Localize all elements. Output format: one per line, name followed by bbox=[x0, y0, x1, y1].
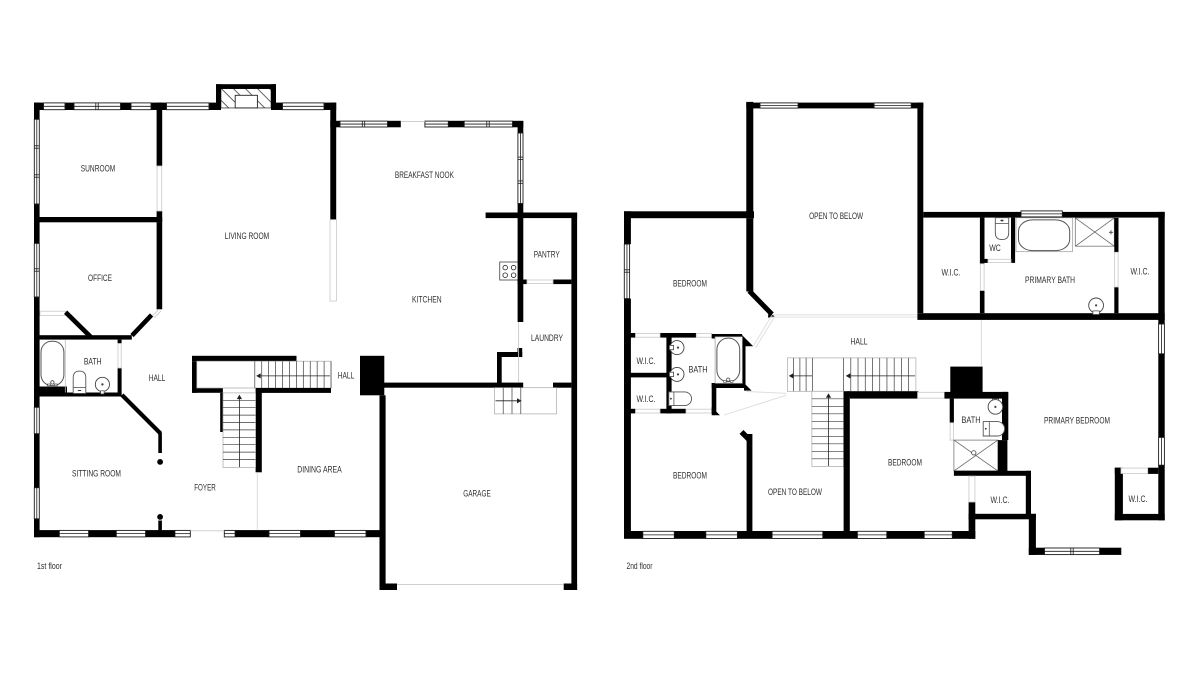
svg-text:PRIMARY BATH: PRIMARY BATH bbox=[1025, 275, 1075, 285]
svg-text:LAUNDRY: LAUNDRY bbox=[531, 333, 563, 343]
svg-text:HALL: HALL bbox=[149, 373, 166, 383]
svg-text:SUNROOM: SUNROOM bbox=[81, 163, 116, 173]
svg-text:HALL: HALL bbox=[338, 370, 355, 380]
svg-text:W.I.C.: W.I.C. bbox=[637, 356, 656, 366]
svg-text:PRIMARY BEDROOM: PRIMARY BEDROOM bbox=[1044, 415, 1110, 425]
svg-text:PANTRY: PANTRY bbox=[534, 250, 560, 260]
svg-text:KITCHEN: KITCHEN bbox=[412, 294, 442, 304]
svg-text:BATH: BATH bbox=[962, 415, 981, 425]
svg-text:BEDROOM: BEDROOM bbox=[888, 457, 922, 467]
svg-text:OPEN TO BELOW: OPEN TO BELOW bbox=[809, 211, 863, 221]
svg-text:BATH: BATH bbox=[689, 364, 708, 374]
svg-text:1st floor: 1st floor bbox=[37, 561, 62, 571]
svg-text:LIVING ROOM: LIVING ROOM bbox=[225, 231, 270, 241]
svg-text:DINING AREA: DINING AREA bbox=[297, 465, 342, 475]
svg-text:BREAKFAST NOOK: BREAKFAST NOOK bbox=[395, 170, 454, 180]
svg-text:FOYER: FOYER bbox=[194, 482, 216, 492]
svg-text:BEDROOM: BEDROOM bbox=[673, 278, 707, 288]
svg-text:HALL: HALL bbox=[851, 337, 868, 347]
svg-text:GARAGE: GARAGE bbox=[463, 488, 491, 498]
svg-text:W.I.C.: W.I.C. bbox=[1129, 494, 1148, 504]
svg-text:2nd floor: 2nd floor bbox=[627, 561, 653, 571]
svg-text:SITTING ROOM: SITTING ROOM bbox=[72, 469, 121, 479]
svg-text:OFFICE: OFFICE bbox=[88, 273, 112, 283]
svg-text:BEDROOM: BEDROOM bbox=[673, 471, 707, 481]
svg-text:WC: WC bbox=[989, 243, 1001, 253]
svg-text:BATH: BATH bbox=[84, 356, 102, 366]
svg-text:W.I.C.: W.I.C. bbox=[1131, 267, 1150, 277]
svg-text:OPEN TO BELOW: OPEN TO BELOW bbox=[768, 487, 822, 497]
svg-text:W.I.C.: W.I.C. bbox=[942, 268, 961, 278]
svg-text:W.I.C.: W.I.C. bbox=[991, 495, 1010, 505]
svg-text:W.I.C.: W.I.C. bbox=[637, 394, 656, 404]
